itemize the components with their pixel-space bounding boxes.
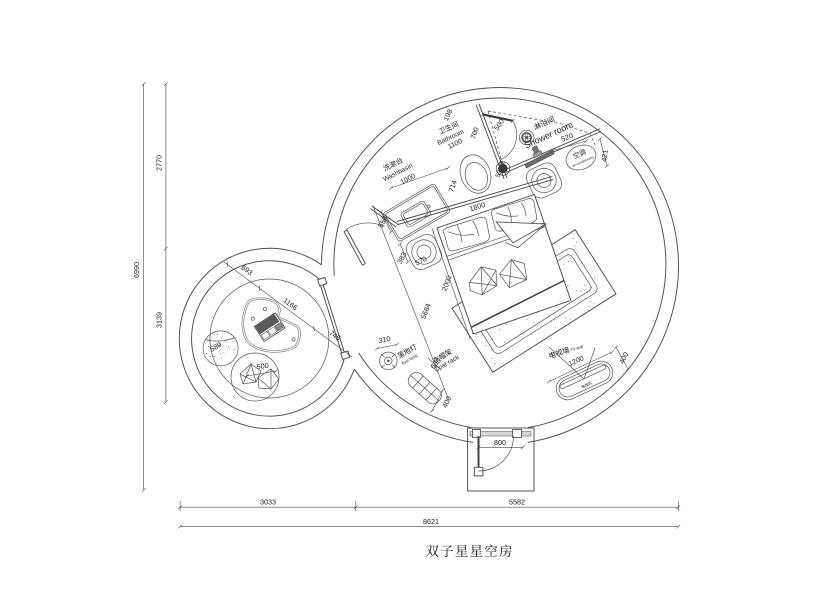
svg-text:3033: 3033 (260, 498, 276, 507)
svg-text:8621: 8621 (423, 517, 439, 526)
svg-text:800: 800 (494, 438, 506, 447)
svg-text:5582: 5582 (509, 498, 525, 507)
svg-text:2770: 2770 (155, 155, 164, 171)
svg-text:3139: 3139 (155, 312, 164, 328)
svg-text:421: 421 (599, 149, 609, 162)
svg-text:500: 500 (256, 361, 269, 372)
svg-text:6990: 6990 (132, 262, 141, 278)
